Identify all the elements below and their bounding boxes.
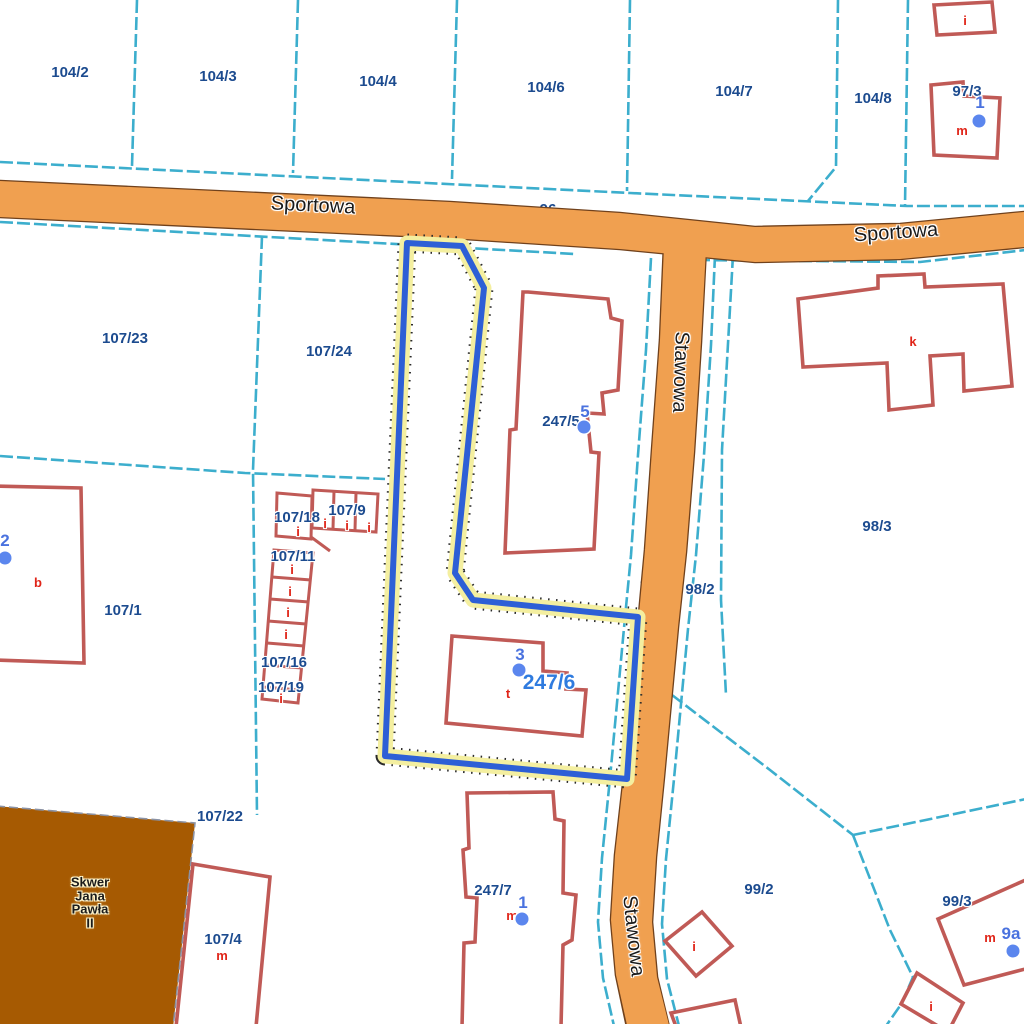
parcel-label-107-9: 107/9 (328, 503, 366, 519)
parcel-boundary-line (905, 0, 908, 206)
parcel-label-247-7: 247/7 (474, 883, 512, 899)
address-number-1-0: 1 (975, 94, 984, 112)
building-letter-i-18: i (929, 1000, 933, 1014)
address-point-dot (516, 913, 529, 926)
building-letter-m-1: m (956, 124, 968, 138)
parcel-label-104-7: 104/7 (715, 84, 753, 100)
building-letter-b-3: b (34, 576, 42, 590)
parcel-label-107-23: 107/23 (102, 331, 148, 347)
parcel-boundary-line (253, 236, 262, 815)
building-letter-i-17: i (692, 940, 696, 954)
parcel-boundary-line (672, 695, 853, 835)
address-point-dot (1007, 945, 1020, 958)
address-point-dot (973, 115, 986, 128)
building-letter-i-0: i (963, 14, 967, 28)
selected-parcel-dotted-edge (385, 243, 638, 779)
park-label-skwer-jana-pawla: Skwer Jana Pawła II (71, 876, 109, 931)
address-number-1-4: 1 (518, 894, 527, 912)
building-letter-i-5: i (323, 517, 327, 531)
parcel-label-104-8: 104/8 (854, 91, 892, 107)
parcel-label-104-3: 104/3 (199, 69, 237, 85)
building-letter-m-16: m (984, 931, 996, 945)
building-letter-i-6: i (345, 519, 349, 533)
address-number-3-2: 3 (515, 646, 524, 664)
address-point-dot (578, 421, 591, 434)
parcel-label-99-3: 99/3 (942, 894, 971, 910)
parcel-label-107-22: 107/22 (197, 809, 243, 825)
building-letter-i-9: i (288, 585, 292, 599)
street-label-stawowa-2: Stawowa (668, 331, 692, 413)
parcel-boundary-line (132, 0, 137, 166)
parcel-boundary-line (808, 0, 838, 201)
parcel-label-107-1: 107/1 (104, 603, 142, 619)
parcel-label-104-6: 104/6 (527, 80, 565, 96)
selected-parcel-border (385, 243, 638, 779)
parcel-boundary-line (293, 0, 298, 173)
building-letter-i-4: i (296, 525, 300, 539)
parcel-boundary-line (627, 0, 630, 191)
parcel-label-107-4: 107/4 (204, 932, 242, 948)
building-letter-k-2: k (909, 335, 916, 349)
street-label-sportowa-0: Sportowa (270, 193, 355, 218)
building-letter-m-14: m (216, 949, 228, 963)
building-letter-i-12: i (279, 692, 283, 706)
parcel-label-98-3: 98/3 (862, 519, 891, 535)
parcel-boundary-line (452, 0, 457, 179)
parcel-label-99-2: 99/2 (744, 882, 773, 898)
building-outline (671, 1000, 742, 1024)
address-number-9a-5: 9a (1002, 925, 1021, 943)
map-vector-layer: 96 10 (0, 0, 1024, 1024)
building-letter-i-7: i (367, 521, 371, 535)
parcel-label-247-5: 247/5 (542, 414, 580, 430)
building-outline (798, 274, 1012, 410)
parcel-label-104-4: 104/4 (359, 74, 397, 90)
parcel-label-98-2: 98/2 (685, 582, 714, 598)
address-number-5-1: 5 (580, 403, 589, 421)
address-number-2-3: 2 (0, 532, 9, 550)
selected-parcel-label[interactable]: 247/6 (523, 672, 576, 694)
parcel-boundary-line (0, 456, 385, 479)
parcel-boundary-line (853, 799, 1024, 835)
building-letter-t-13: t (506, 687, 510, 701)
parcel-label-107-16: 107/16 (261, 655, 307, 671)
parcel-label-104-2: 104/2 (51, 65, 89, 81)
parcel-boundary-line (721, 255, 733, 695)
building-letter-i-8: i (290, 563, 294, 577)
selected-parcel-outline[interactable] (385, 243, 638, 779)
building-letter-i-10: i (286, 606, 290, 620)
map-canvas[interactable]: 96 10 (0, 0, 1024, 1024)
building-letter-i-11: i (284, 628, 288, 642)
parcel-label-107-24: 107/24 (306, 344, 352, 360)
building-outline (665, 912, 732, 976)
selected-parcel-halo (385, 243, 638, 779)
